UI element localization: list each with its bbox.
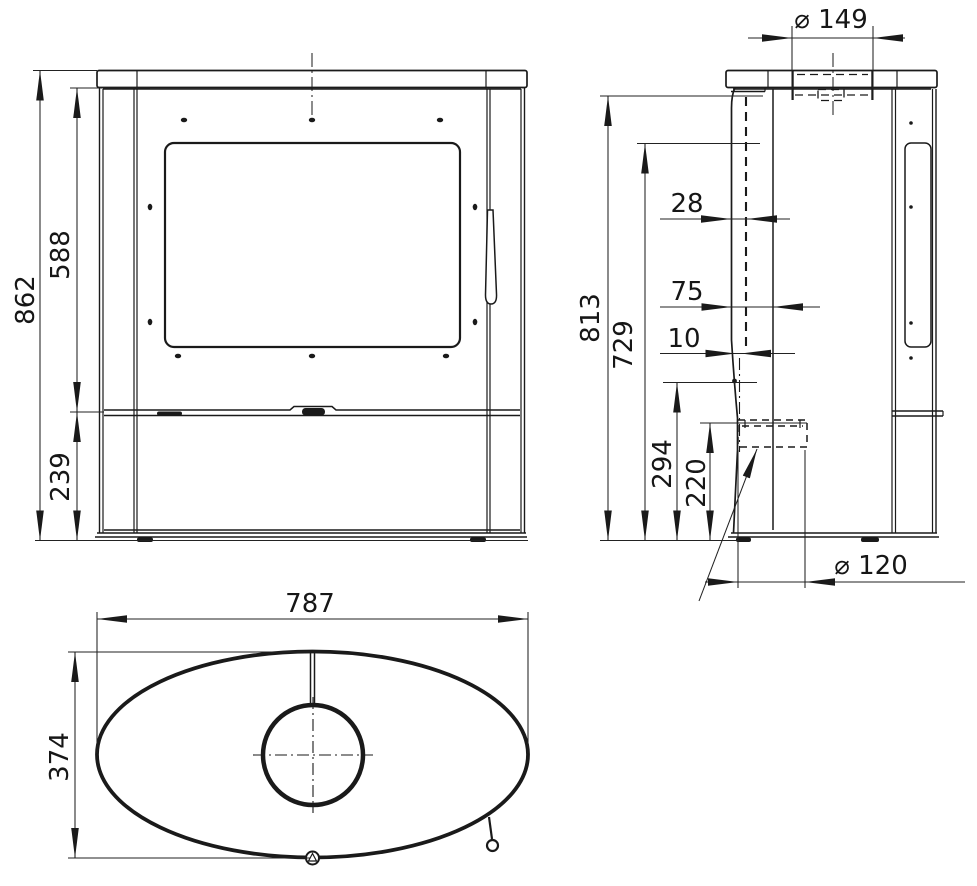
door-handle (486, 210, 497, 304)
door-glass-edge (905, 143, 931, 347)
side-view (726, 53, 943, 542)
screw-dot (909, 356, 913, 360)
top-plate-outline (97, 652, 528, 858)
screw-dot (309, 354, 315, 359)
dim-label-flue-diameter: ⌀ 149 (794, 5, 868, 35)
door-handle-top (489, 817, 492, 839)
screw-dot (175, 354, 181, 359)
door-handle-ring (487, 840, 498, 851)
dim-label-813: 813 (576, 293, 606, 343)
screw-dot (909, 205, 913, 209)
front-view (95, 53, 527, 542)
screw-dot (181, 118, 187, 123)
dim-label-239: 239 (46, 452, 76, 502)
screw-dot (473, 204, 478, 210)
screw-dot (909, 321, 913, 325)
screw-dot (148, 204, 153, 210)
dim-label-374: 374 (45, 732, 75, 782)
dim-label-787: 787 (285, 589, 335, 619)
dim-label-28: 28 (670, 189, 703, 219)
dim-label-air-inlet-diameter: ⌀ 120 (834, 551, 908, 581)
dim-label-729: 729 (609, 320, 639, 370)
dim-label-294: 294 (648, 439, 678, 489)
screw-dot (437, 118, 443, 123)
screw-dot (909, 121, 913, 125)
top-view (97, 652, 528, 865)
screw-dot (443, 354, 449, 359)
stove-dimension-drawing: 862 588 239 (0, 0, 977, 886)
dim-label-220: 220 (682, 458, 712, 508)
technical-drawing-page: 862 588 239 (0, 0, 977, 886)
hinge-mark (157, 412, 182, 416)
dim-label-588: 588 (46, 230, 76, 280)
door-latch (302, 408, 325, 416)
screw-dot (309, 118, 315, 123)
screw-dot (473, 319, 478, 325)
top-view-dimensions: 787 374 (45, 589, 528, 858)
door-glass-window (165, 143, 460, 347)
rear-edge (732, 88, 738, 534)
dim-label-862: 862 (11, 275, 41, 325)
screw-dot (148, 319, 153, 325)
foot (470, 538, 486, 543)
dim-label-75: 75 (670, 277, 703, 307)
dim-label-10: 10 (667, 324, 700, 354)
foot (861, 538, 879, 543)
side-top-plate (726, 71, 937, 88)
foot (137, 538, 153, 543)
